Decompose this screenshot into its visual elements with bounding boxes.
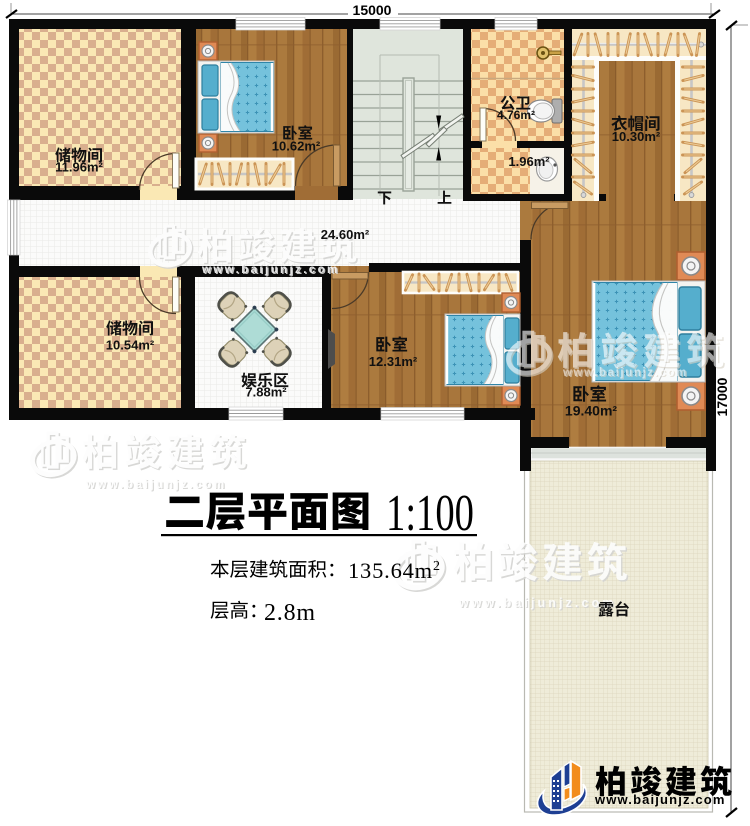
- svg-text:11.96m²: 11.96m²: [55, 160, 103, 175]
- svg-text:4.76m²: 4.76m²: [497, 108, 535, 122]
- svg-text:www.baijunjz.com: www.baijunjz.com: [562, 367, 688, 379]
- svg-text:www.baijunjz.com: www.baijunjz.com: [201, 264, 340, 276]
- svg-text:www.baijunjz.com: www.baijunjz.com: [85, 479, 227, 491]
- svg-text:1.96m²: 1.96m²: [508, 154, 550, 169]
- svg-text:12.31m²: 12.31m²: [369, 354, 418, 369]
- svg-text:2.8m: 2.8m: [264, 600, 316, 626]
- svg-text:1:100: 1:100: [386, 485, 474, 542]
- svg-text:24.60m²: 24.60m²: [321, 227, 370, 242]
- svg-text:www.baijunjz.com: www.baijunjz.com: [458, 596, 616, 610]
- svg-text:19.40m²: 19.40m²: [565, 403, 617, 419]
- svg-text:10.54m²: 10.54m²: [106, 338, 155, 353]
- svg-text:10.30m²: 10.30m²: [612, 129, 661, 144]
- svg-text:135.64m2: 135.64m2: [348, 558, 441, 583]
- svg-text:10.62m²: 10.62m²: [272, 139, 321, 154]
- svg-text:www.baijunjz.com: www.baijunjz.com: [594, 792, 726, 807]
- svg-text:15000: 15000: [353, 2, 392, 18]
- svg-text:17000: 17000: [714, 377, 730, 416]
- svg-text:7.88m²: 7.88m²: [245, 385, 287, 400]
